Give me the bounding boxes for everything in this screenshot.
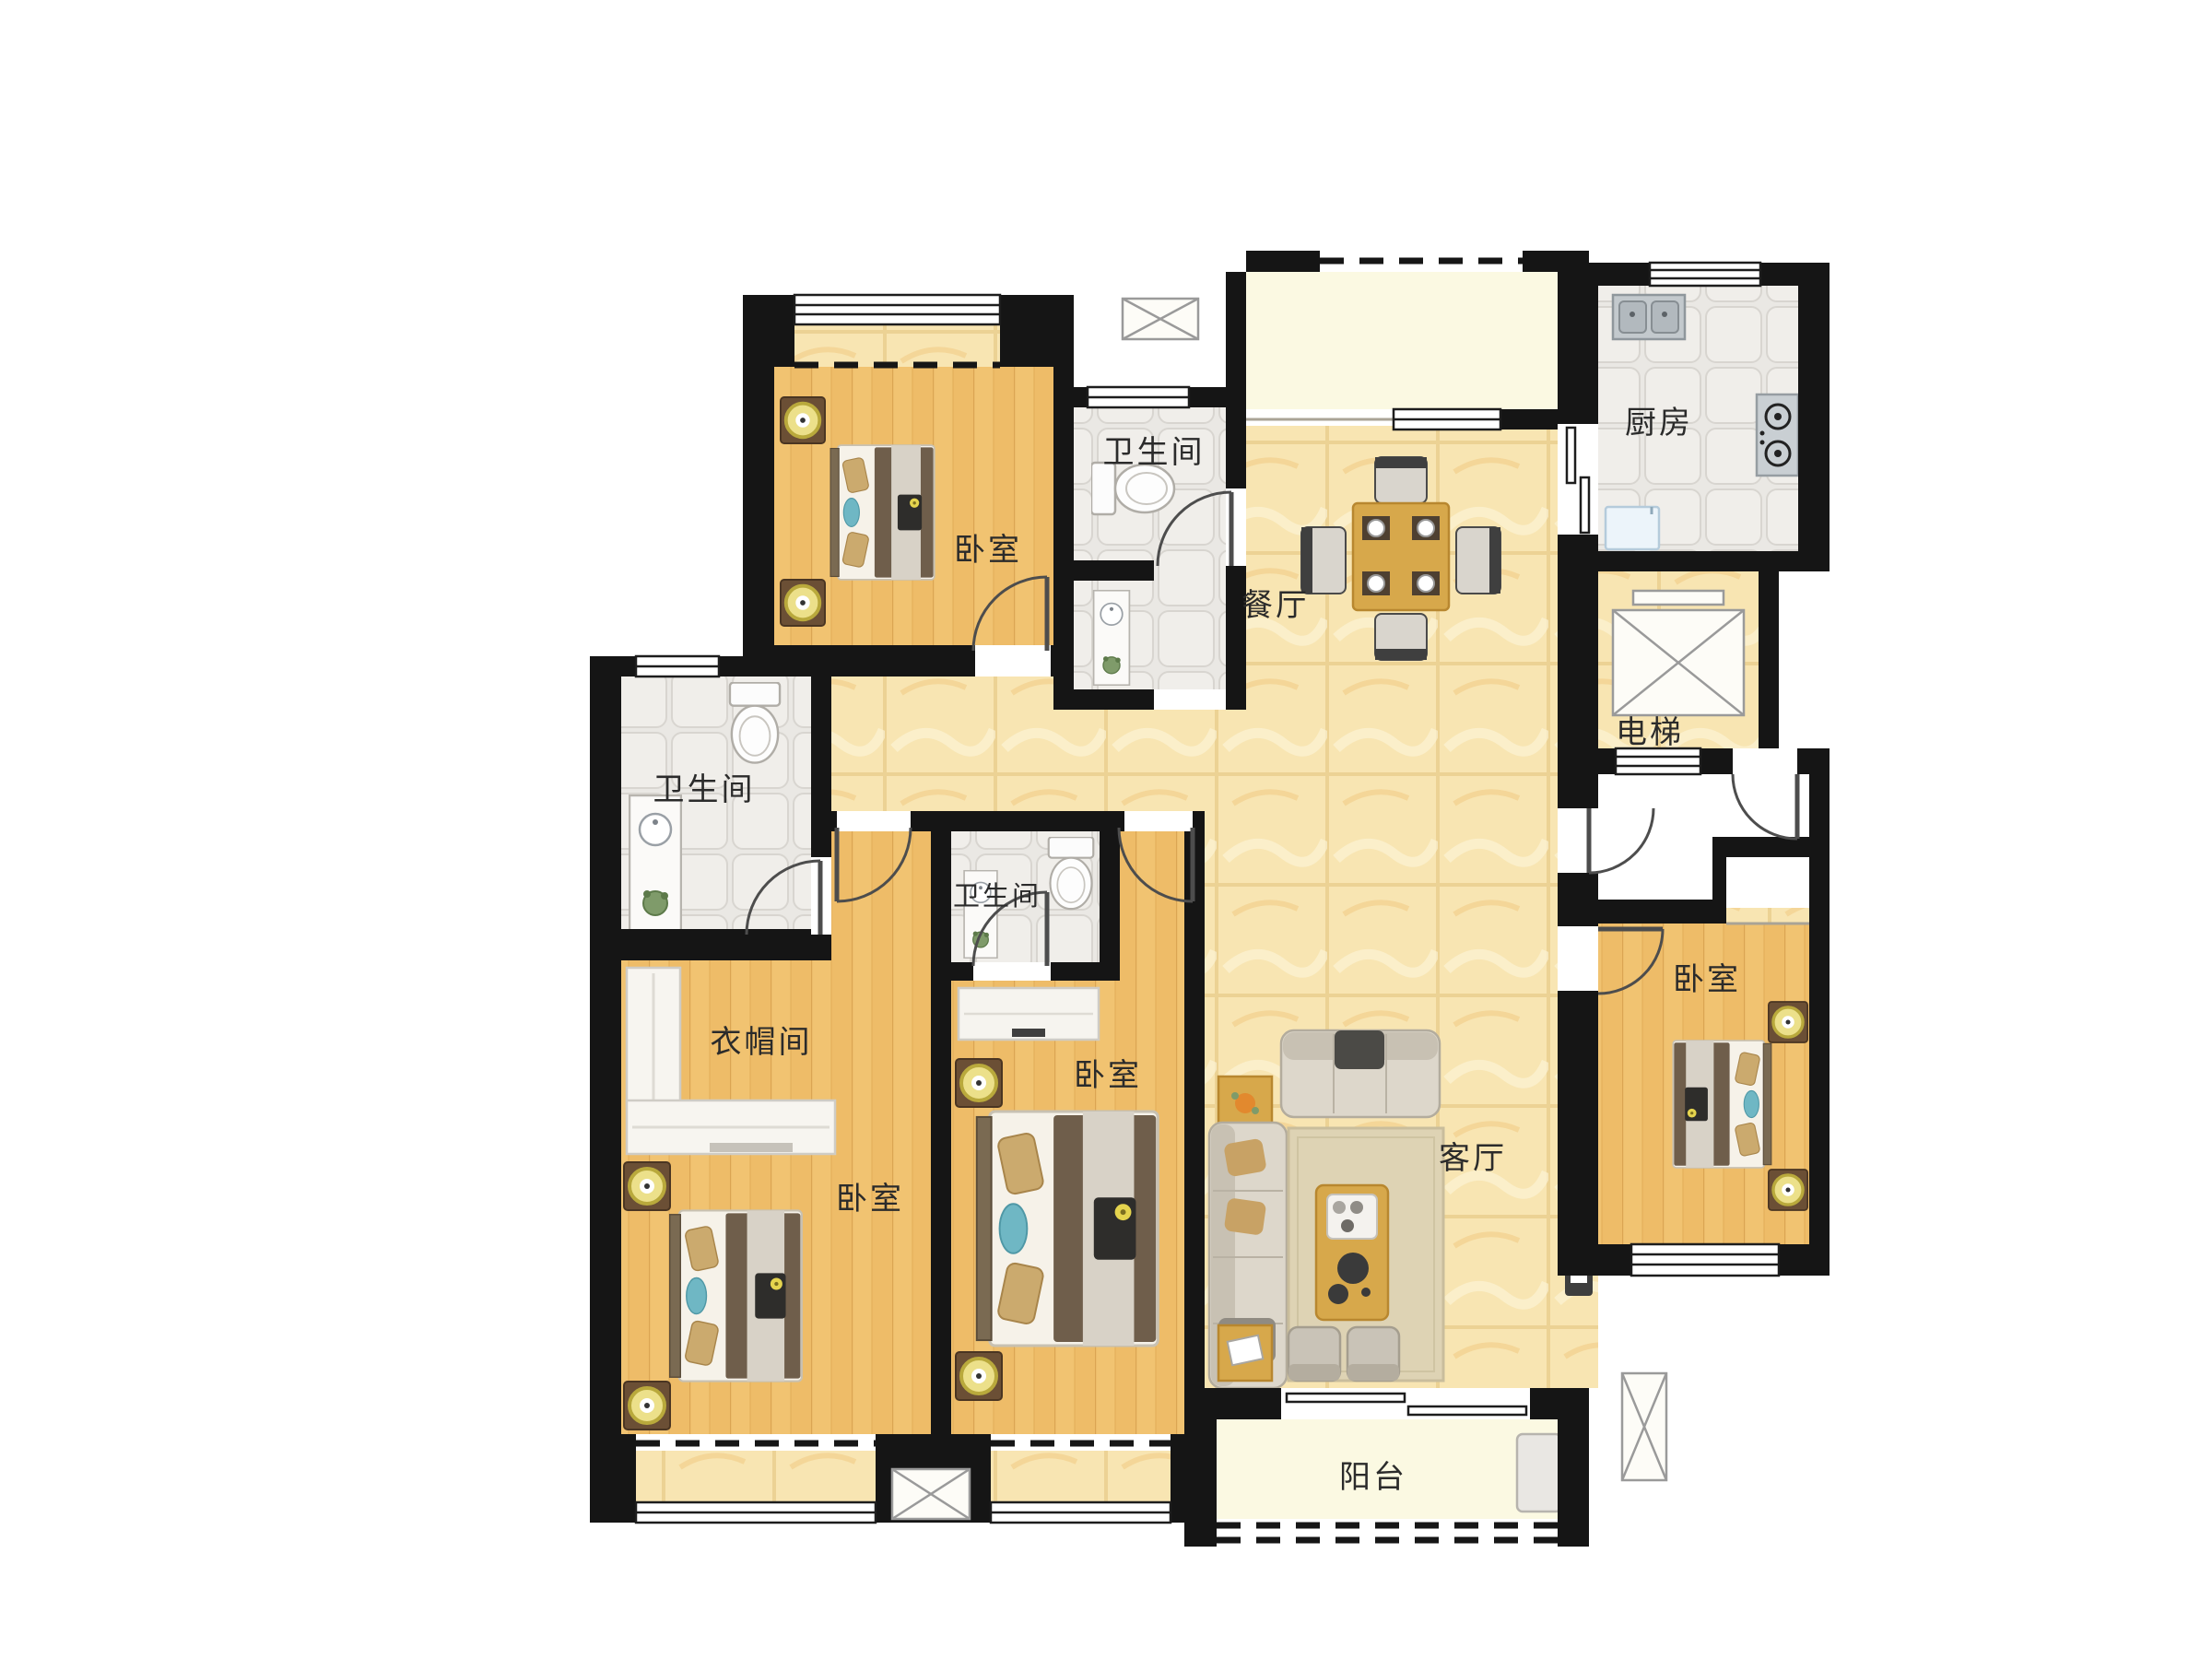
floor-bedroom-bottom-middle-entry [1120,831,1184,981]
vanity-sink-icon [629,795,681,932]
room-label-bedroom-top-left: 卧室 [954,532,1022,569]
room-label-elevator: 电梯 [1616,714,1684,751]
open-passage [1154,689,1226,710]
balcony-railing-dash [1217,1519,1558,1547]
room-label-bedroom-bottom-middle: 卧室 [1074,1057,1142,1094]
room-label-balcony: 阳台 [1339,1459,1407,1496]
room-label-cloakroom: 衣帽间 [711,1024,813,1061]
nightstand-lamp-icon [781,580,825,626]
nightstand-lamp-icon [781,397,825,443]
window-icon [1394,409,1500,429]
floor-plan-canvas: 卧室 卫生间 厨房 餐厅 电梯 卫生间 卫生间 衣帽间 卧室 卧室 卧室 客厅 … [0,0,2212,1659]
window-icon [991,1502,1171,1523]
room-label-bathroom-top: 卫生间 [1103,434,1206,471]
window-icon [1088,387,1189,407]
coffee-table-icon [1316,1185,1388,1320]
double-bed-icon [670,1210,802,1381]
dresser-icon [959,988,1099,1040]
window-icon [1616,748,1700,774]
nightstand-lamp-icon [956,1059,1002,1107]
shaft-x-icon [1622,1373,1666,1480]
floor-bay-top [794,324,1000,367]
nightstand-lamp-icon [1769,1002,1807,1042]
window-icon [636,1502,876,1523]
sliding-door-icon [1281,1388,1530,1419]
window-icon [636,656,719,677]
shaft-x-icon [1123,299,1198,339]
floor-bay-bm [991,1451,1171,1502]
double-bed-icon [830,445,935,580]
entry-opening-dash [1320,251,1523,272]
nightstand-lamp-icon [624,1162,670,1210]
shaft-x-icon [892,1469,970,1519]
floor-closet-passage [831,831,931,960]
double-bed-icon [1673,1041,1771,1168]
elevator-shaft-icon [1613,591,1744,715]
double-bed-icon [977,1112,1158,1346]
room-label-bedroom-bottom-left: 卧室 [836,1181,904,1218]
window-icon [1631,1244,1779,1276]
window-icon [794,295,1000,324]
floor-entry-hall [1246,272,1558,409]
nightstand-lamp-icon [1769,1170,1807,1210]
toilet-icon [1049,837,1094,909]
floor-bay-bl [636,1451,876,1502]
room-label-living: 客厅 [1439,1140,1507,1177]
floor-plan-page: 卧室 卫生间 厨房 餐厅 电梯 卫生间 卫生间 衣帽间 卧室 卧室 卧室 客厅 … [0,0,2212,1659]
sliding-door-icon [1558,424,1598,535]
window-icon [1650,263,1760,286]
sofa-group-icon [1209,1030,1443,1388]
nightstand-lamp-icon [624,1382,670,1430]
refrigerator-icon [1606,507,1659,549]
room-label-bedroom-right: 卧室 [1673,961,1741,998]
vanity-sink-icon [1094,591,1130,686]
room-label-dining: 餐厅 [1241,587,1310,624]
kitchen-sink-icon [1613,295,1685,339]
balcony-cabinet-icon [1517,1434,1561,1512]
nightstand-lamp-icon [956,1352,1002,1400]
room-label-kitchen: 厨房 [1625,405,1693,441]
gas-stove-icon [1757,394,1798,476]
room-label-bathroom-left: 卫生间 [653,771,756,808]
toilet-icon [730,683,780,763]
room-label-bathroom-middle: 卫生间 [953,880,1041,912]
